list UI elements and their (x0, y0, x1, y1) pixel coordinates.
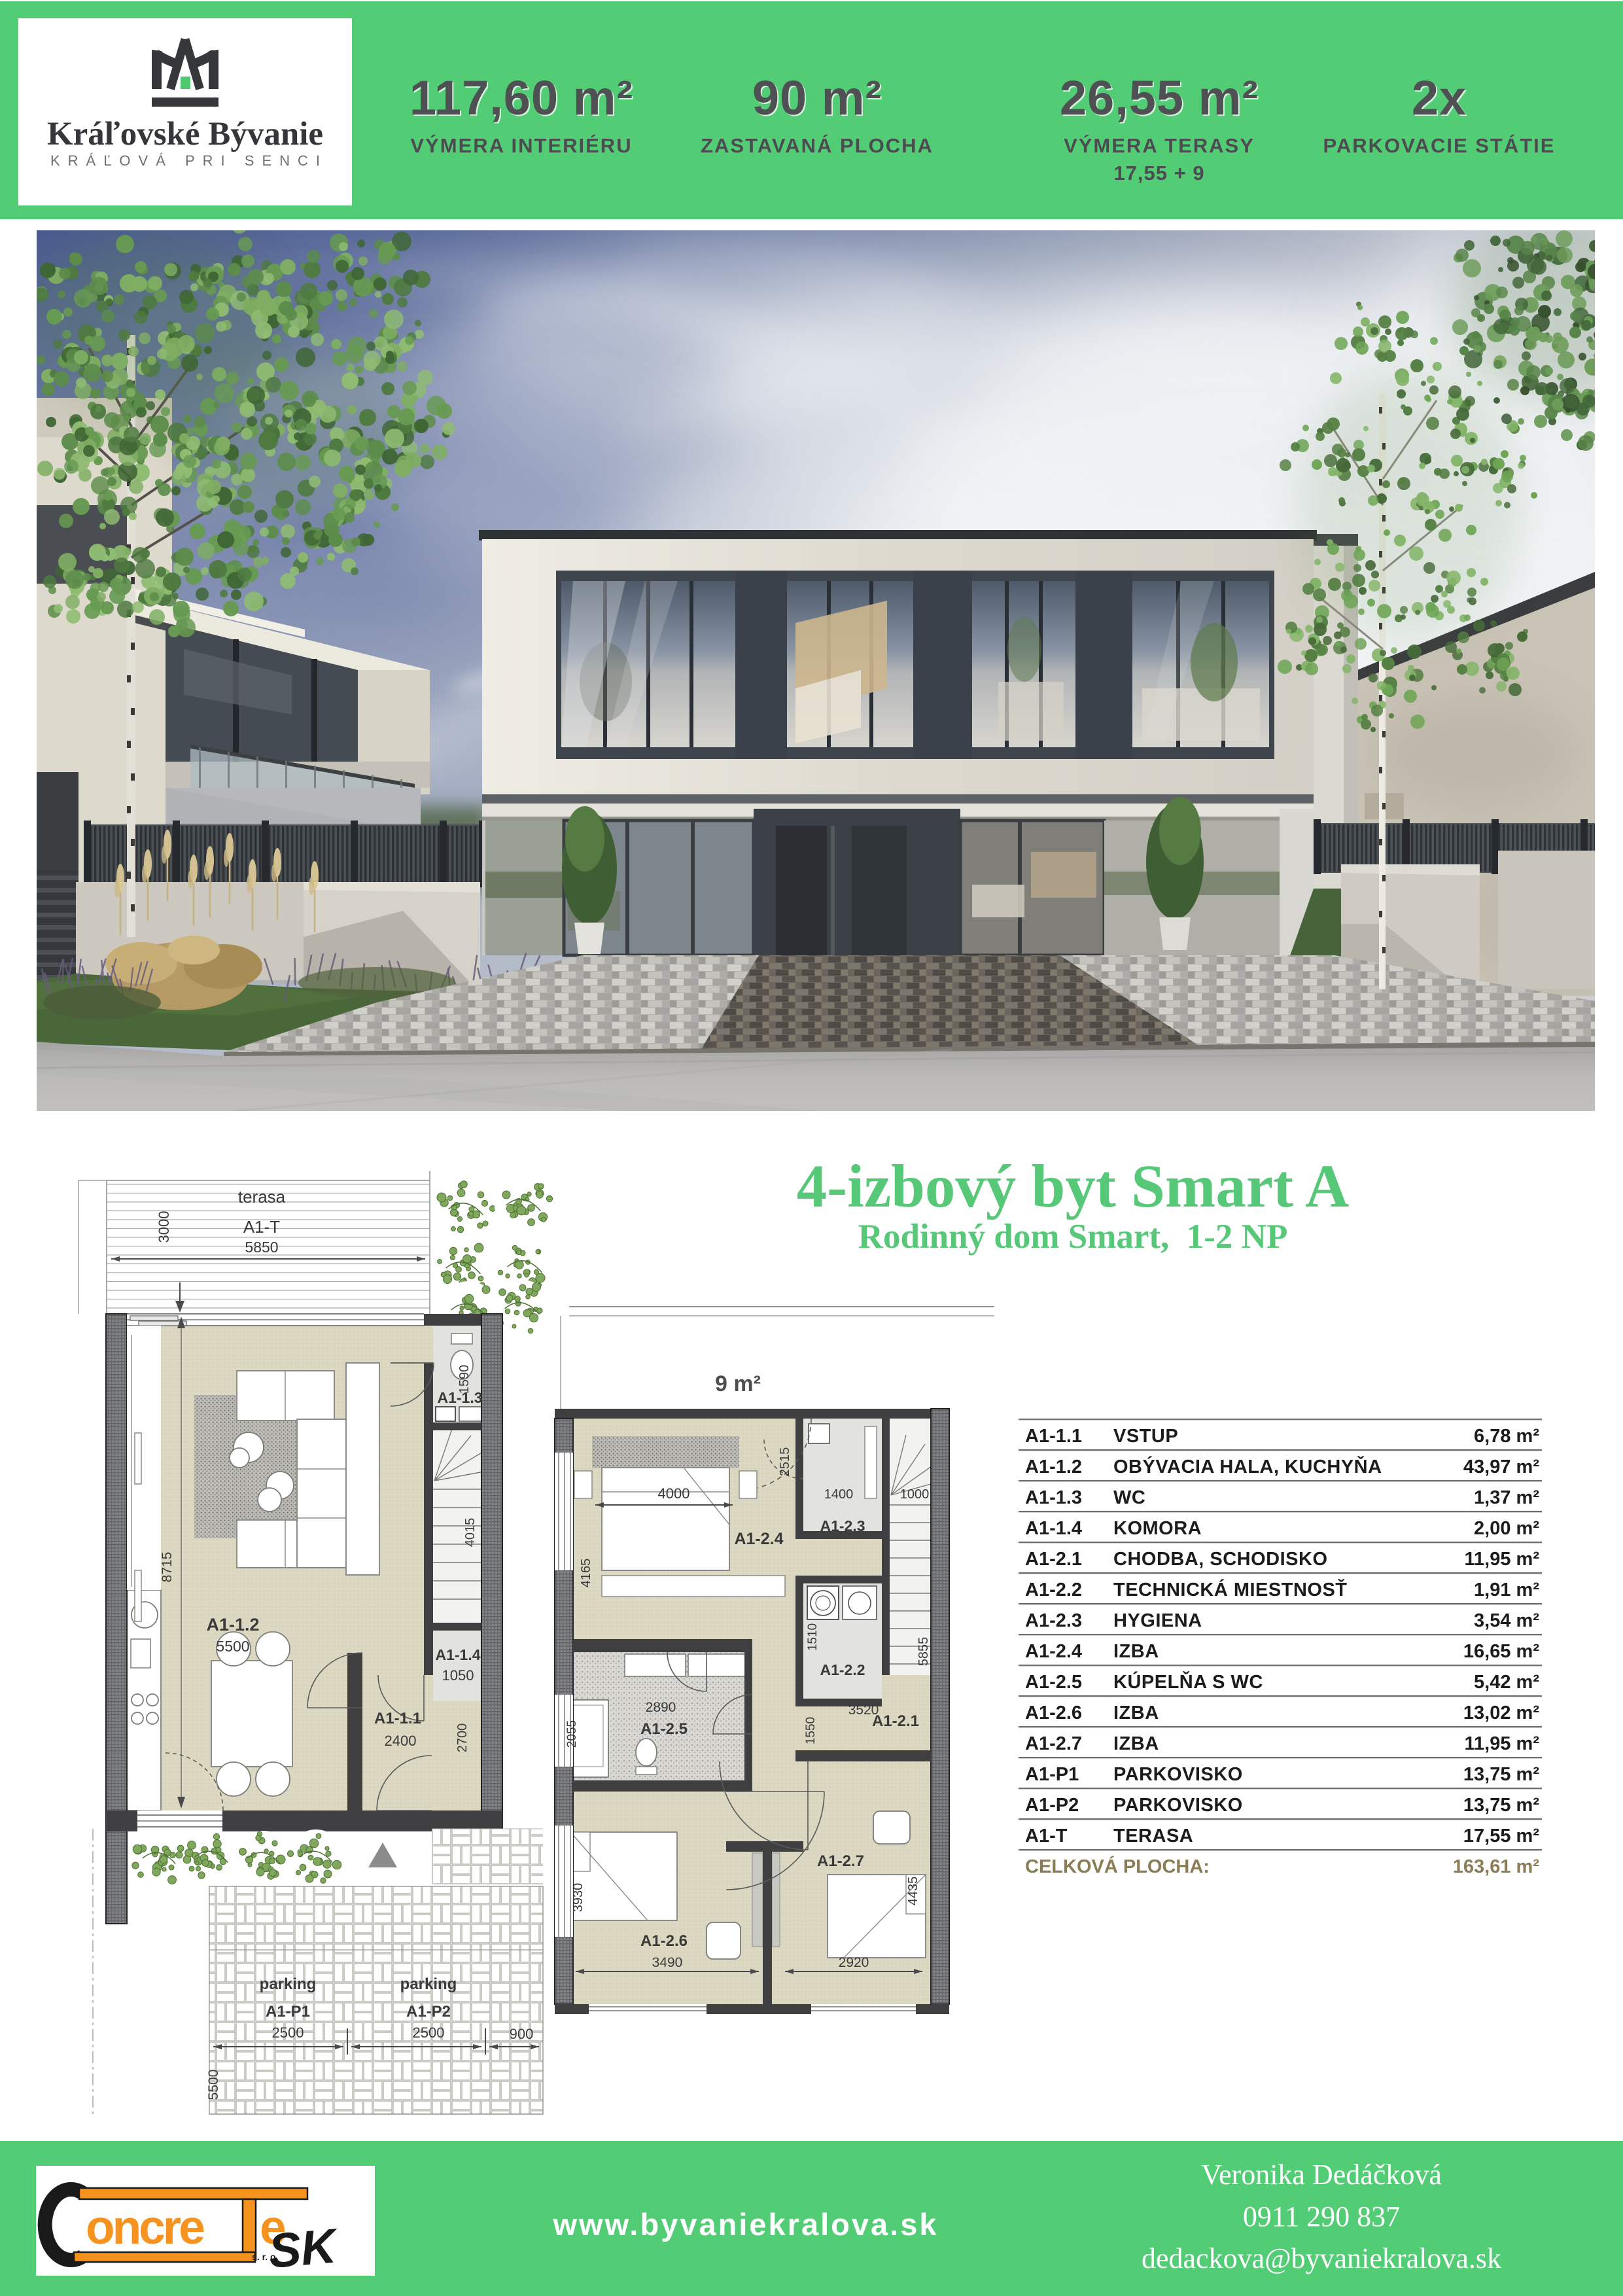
svg-text:A1-P2: A1-P2 (406, 2003, 451, 2021)
svg-text:terasa: terasa (238, 1187, 286, 1207)
svg-text:2400: 2400 (385, 1733, 417, 1749)
svg-text:A1-2.5: A1-2.5 (640, 1720, 688, 1738)
svg-text:A1-1.1: A1-1.1 (374, 1710, 421, 1727)
svg-text:A1-P1: A1-P1 (266, 2003, 310, 2021)
svg-text:SK: SK (266, 2218, 341, 2276)
svg-text:1000: 1000 (900, 1487, 930, 1502)
svg-text:parking: parking (260, 1975, 317, 1993)
svg-text:5850: 5850 (245, 1239, 278, 1256)
svg-text:8715: 8715 (160, 1552, 175, 1583)
svg-text:3930: 3930 (571, 1883, 585, 1913)
svg-text:1590: 1590 (457, 1365, 472, 1394)
svg-text:A1-2.1: A1-2.1 (872, 1712, 919, 1730)
svg-text:4000: 4000 (658, 1485, 690, 1502)
svg-text:A1-1.4: A1-1.4 (435, 1646, 480, 1663)
svg-text:A1-2.2: A1-2.2 (820, 1661, 865, 1678)
svg-text:3490: 3490 (652, 1955, 683, 1970)
svg-text:1550: 1550 (804, 1717, 818, 1744)
svg-text:A1-2.3: A1-2.3 (820, 1517, 865, 1534)
svg-text:2515: 2515 (778, 1447, 792, 1477)
svg-text:1050: 1050 (442, 1667, 474, 1684)
svg-text:5855: 5855 (916, 1637, 931, 1667)
svg-text:2500: 2500 (272, 2024, 304, 2041)
svg-text:A1-2.7: A1-2.7 (817, 1852, 864, 1870)
svg-text:9 m²: 9 m² (715, 1371, 761, 1396)
svg-text:2055: 2055 (565, 1720, 579, 1748)
svg-text:900: 900 (510, 2026, 534, 2042)
svg-text:4435: 4435 (906, 1877, 920, 1906)
svg-text:1400: 1400 (824, 1487, 854, 1502)
svg-text:A1-1.2: A1-1.2 (206, 1615, 259, 1634)
svg-text:A1-T: A1-T (243, 1217, 280, 1237)
svg-text:2920: 2920 (839, 1955, 869, 1970)
svg-text:4165: 4165 (579, 1559, 593, 1588)
svg-text:2500: 2500 (413, 2024, 445, 2041)
svg-text:3520: 3520 (848, 1703, 879, 1718)
svg-text:2890: 2890 (646, 1700, 676, 1715)
svg-text:A1-2.6: A1-2.6 (640, 1932, 688, 1950)
svg-text:4015: 4015 (463, 1518, 478, 1547)
svg-text:2700: 2700 (455, 1723, 470, 1753)
svg-text:oncre: oncre (86, 2201, 204, 2254)
svg-text:1510: 1510 (806, 1623, 820, 1651)
svg-text:5500: 5500 (216, 1638, 249, 1655)
svg-text:3000: 3000 (156, 1211, 172, 1243)
svg-text:parking: parking (400, 1975, 457, 1993)
svg-text:5500: 5500 (206, 2070, 221, 2100)
svg-text:A1-2.4: A1-2.4 (734, 1530, 783, 1548)
